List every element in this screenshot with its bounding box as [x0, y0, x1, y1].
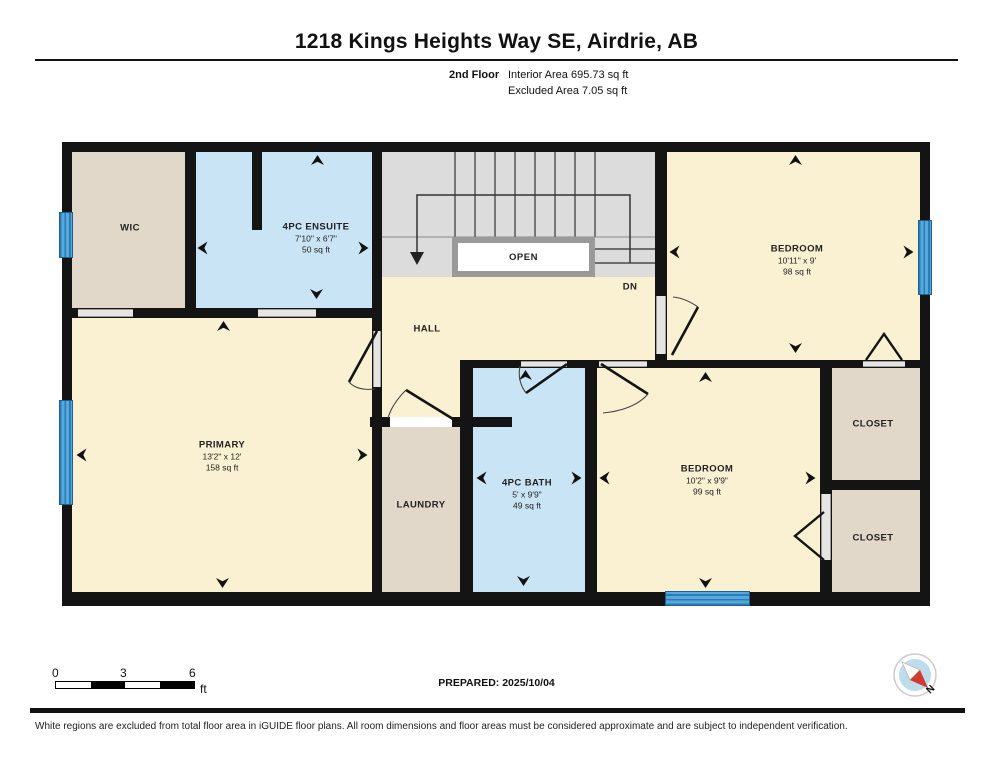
- wall: [62, 592, 930, 606]
- wall: [62, 142, 930, 152]
- room-label-primary: PRIMARY 13'2" x 12' 158 sq ft: [199, 440, 245, 473]
- window-icon: [918, 220, 932, 295]
- wall: [452, 417, 512, 427]
- floor-plan-page: 1218 Kings Heights Way SE, Airdrie, AB 2…: [0, 0, 993, 768]
- window-icon: [59, 212, 73, 258]
- opening-closet-top: [863, 361, 905, 367]
- room-label-closet-top: CLOSET: [853, 419, 894, 430]
- page-title: 1218 Kings Heights Way SE, Airdrie, AB: [0, 30, 993, 54]
- opening-primary-door: [373, 331, 381, 387]
- wall: [370, 417, 390, 427]
- room-hall-extension: [382, 360, 460, 417]
- wall: [252, 152, 262, 230]
- wall: [920, 142, 930, 606]
- opening-bedroom-top-door: [656, 296, 666, 354]
- window-icon: [665, 591, 750, 606]
- wall: [820, 480, 920, 490]
- compass-rose: [890, 650, 944, 704]
- footer-divider: [30, 708, 965, 713]
- stairwell-open-label: OPEN: [452, 237, 595, 277]
- room-label-bedroom-top: BEDROOM 10'11" x 9' 98 sq ft: [771, 244, 823, 277]
- window-icon: [59, 400, 73, 505]
- room-label-wic: WIC: [120, 223, 140, 234]
- opening-bath-door: [521, 361, 567, 367]
- room-label-ensuite: 4PC ENSUITE 7'10" x 6'7" 50 sq ft: [283, 222, 350, 255]
- prepared-date: PREPARED: 2025/10/04: [0, 677, 993, 689]
- opening-bedroom-bottom-door: [599, 361, 647, 367]
- compass-icon: N: [890, 650, 944, 704]
- disclaimer-text: White regions are excluded from total fl…: [35, 721, 848, 732]
- opening-wic: [78, 309, 133, 317]
- interior-area: Interior Area 695.73 sq ft: [508, 69, 628, 81]
- excluded-area: Excluded Area 7.05 sq ft: [508, 85, 627, 97]
- stairs-down-label: DN: [623, 282, 638, 293]
- opening-closet-bottom: [821, 494, 831, 560]
- wall: [585, 360, 597, 592]
- open-label-text: OPEN: [509, 252, 538, 263]
- floor-label: 2nd Floor: [449, 69, 499, 81]
- wall: [185, 152, 196, 308]
- wall: [460, 360, 473, 592]
- header-divider: [35, 59, 958, 61]
- opening-ensuite: [258, 309, 316, 317]
- room-label-bath: 4PC BATH 5' x 9'9" 49 sq ft: [502, 478, 552, 511]
- room-hall: [382, 277, 655, 360]
- floor-plan: WIC 4PC ENSUITE 7'10" x 6'7" 50 sq ft BE…: [62, 142, 930, 606]
- room-label-hall: HALL: [414, 324, 441, 335]
- room-label-laundry: LAUNDRY: [397, 500, 446, 511]
- room-label-closet-bottom: CLOSET: [853, 533, 894, 544]
- room-label-bedroom-bottom: BEDROOM 10'2" x 9'9" 99 sq ft: [681, 464, 733, 497]
